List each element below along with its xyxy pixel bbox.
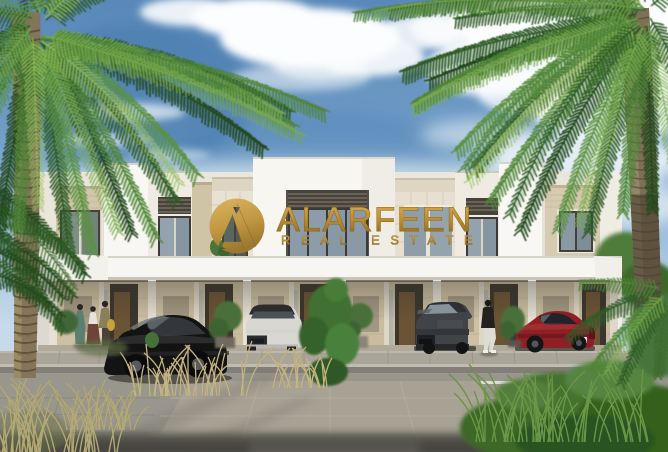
svg-text:REAL ESTATE: REAL ESTATE xyxy=(281,233,483,248)
